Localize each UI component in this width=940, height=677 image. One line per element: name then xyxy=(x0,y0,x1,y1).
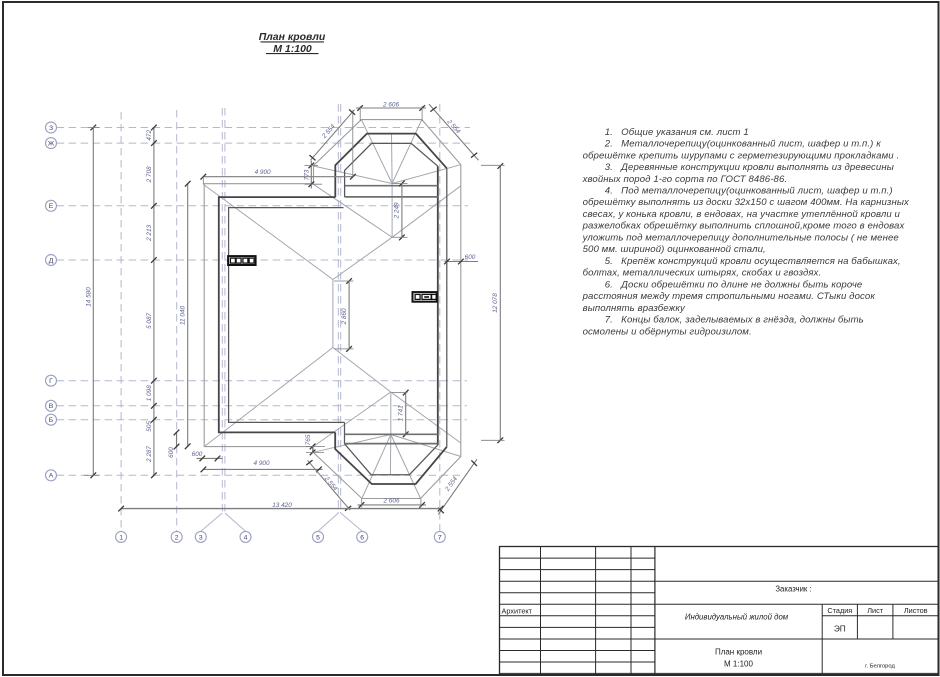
svg-text:11 040: 11 040 xyxy=(180,306,187,326)
svg-text:2 213: 2 213 xyxy=(146,224,153,241)
svg-text:уложить под металлочерепицу до: уложить под металлочерепицу дополнительн… xyxy=(582,232,899,243)
svg-text:2: 2 xyxy=(175,534,179,541)
svg-text:4 900: 4 900 xyxy=(254,460,270,467)
svg-text:болтах, металлических штырях,: болтах, металлических штырях, скобах и г… xyxy=(583,268,822,279)
svg-text:1 741: 1 741 xyxy=(397,405,404,421)
svg-text:4. Под металлочерепицу(оцин: 4. Под металлочерепицу(оцинкованный лист… xyxy=(605,186,893,197)
svg-text:600: 600 xyxy=(168,447,175,458)
svg-text:7: 7 xyxy=(438,534,442,541)
svg-text:разжелобках обрешётку выполнит: разжелобках обрешётку выполнить сплошной… xyxy=(582,221,906,232)
svg-text:4: 4 xyxy=(244,534,248,541)
svg-text:2 606: 2 606 xyxy=(383,498,400,505)
svg-text:600: 600 xyxy=(192,451,203,458)
svg-text:1 098: 1 098 xyxy=(146,385,153,401)
svg-text:З: З xyxy=(49,125,53,132)
svg-text:2 249: 2 249 xyxy=(394,202,401,219)
svg-text:ЭП: ЭП xyxy=(834,624,846,634)
svg-text:Стадия: Стадия xyxy=(827,606,852,615)
svg-text:Лист: Лист xyxy=(867,606,884,615)
svg-text:12 078: 12 078 xyxy=(492,293,499,313)
svg-text:План кровли: План кровли xyxy=(715,648,762,657)
svg-text:5. Крепёж конструкций кровли: 5. Крепёж конструкций кровли осуществляе… xyxy=(605,256,901,267)
svg-text:773: 773 xyxy=(303,169,310,180)
svg-text:1: 1 xyxy=(119,534,123,541)
svg-text:6. Доски обрешётки по длине: 6. Доски обрешётки по длине не должны бы… xyxy=(605,279,863,290)
svg-text:500 мм. шириной) оцинкованной: 500 мм. шириной) оцинкованной стали, xyxy=(583,244,766,255)
svg-text:3. Деревянные конструкции кр: 3. Деревянные конструкции кровли выполня… xyxy=(605,162,894,173)
svg-text:Г: Г xyxy=(49,378,53,385)
svg-text:505: 505 xyxy=(146,421,153,432)
svg-text:обрешётку выполнять из доски 3: обрешётку выполнять из доски 32х150 с ша… xyxy=(583,197,910,208)
svg-text:2 287: 2 287 xyxy=(146,446,153,463)
svg-text:2 606: 2 606 xyxy=(382,101,399,108)
svg-text:Б: Б xyxy=(49,417,54,424)
svg-text:14 580: 14 580 xyxy=(85,287,92,307)
svg-text:Листов: Листов xyxy=(904,606,928,615)
svg-text:В: В xyxy=(49,403,54,410)
svg-text:г. Белгород: г. Белгород xyxy=(865,664,895,670)
svg-text:хвойных пород 1-го сорта по ГО: хвойных пород 1-го сорта по ГОСТ 8486-86… xyxy=(582,174,788,185)
svg-text:5 087: 5 087 xyxy=(146,312,153,328)
svg-text:3: 3 xyxy=(199,534,203,541)
svg-text:А: А xyxy=(49,473,54,480)
svg-text:13 420: 13 420 xyxy=(272,502,292,509)
svg-text:Е: Е xyxy=(49,203,54,210)
svg-text:Ж: Ж xyxy=(48,141,55,148)
svg-text:М 1:100: М 1:100 xyxy=(724,660,753,669)
svg-text:Архитект: Архитект xyxy=(502,607,533,616)
svg-text:Индивидуальный жилой дом: Индивидуальный жилой дом xyxy=(685,613,789,622)
svg-text:Заказчик :: Заказчик : xyxy=(775,585,811,594)
svg-text:2. Металлочерепицу(оцинкован: 2. Металлочерепицу(оцинкованный лист, ша… xyxy=(604,139,882,150)
svg-text:6: 6 xyxy=(360,534,364,541)
svg-text:765: 765 xyxy=(305,434,312,445)
svg-text:осмолены и обёрнуты гидроизило: осмолены и обёрнуты гидроизилом. xyxy=(583,326,752,337)
svg-text:выполнять вразбежку: выполнять вразбежку xyxy=(583,303,686,314)
svg-text:расстояния между тремя стропил: расстояния между тремя стропильными нога… xyxy=(582,291,876,302)
svg-text:472: 472 xyxy=(146,130,153,141)
svg-text:1. Общие указания см. лист 1: 1. Общие указания см. лист 1 xyxy=(605,127,749,138)
svg-text:7. Концы балок, заделываемых: 7. Концы балок, заделываемых в гнёзда, д… xyxy=(605,315,864,326)
svg-text:5: 5 xyxy=(316,534,320,541)
svg-text:Д: Д xyxy=(49,257,54,264)
svg-text:обрешётке крепить шурупами с г: обрешётке крепить шурупами с герметезиру… xyxy=(583,150,900,161)
svg-text:План кровли: План кровли xyxy=(259,31,326,43)
svg-text:600: 600 xyxy=(465,254,476,261)
svg-text:свесах, у конька кровли, в енд: свесах, у конька кровли, в ендовах, на у… xyxy=(583,209,901,220)
svg-text:2 860: 2 860 xyxy=(341,308,348,325)
svg-text:4 900: 4 900 xyxy=(255,169,271,176)
svg-text:2 708: 2 708 xyxy=(146,166,153,183)
